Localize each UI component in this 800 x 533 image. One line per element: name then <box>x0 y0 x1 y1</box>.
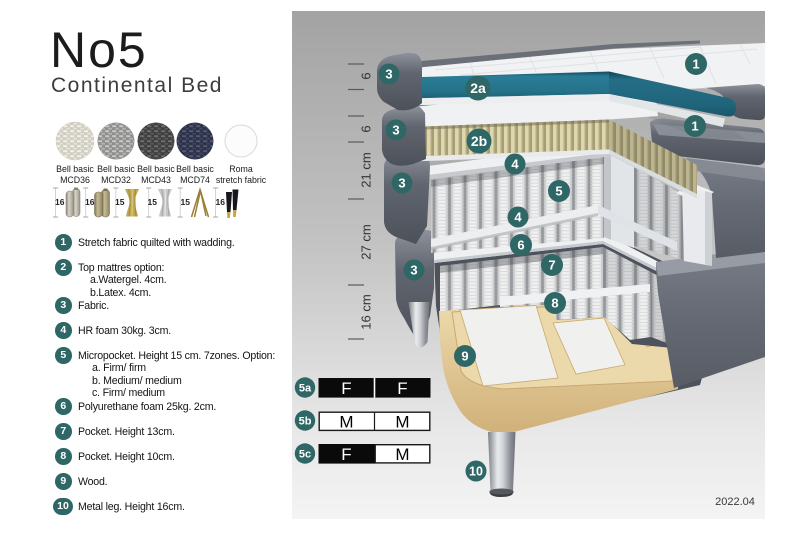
svg-text:M: M <box>339 413 353 432</box>
svg-text:1: 1 <box>691 119 698 134</box>
svg-text:6: 6 <box>517 238 524 253</box>
svg-text:5: 5 <box>555 184 562 199</box>
svg-text:5c: 5c <box>299 449 311 461</box>
svg-text:5a: 5a <box>299 383 312 395</box>
svg-text:6: 6 <box>358 72 373 79</box>
svg-text:2a: 2a <box>470 80 486 96</box>
svg-text:M: M <box>395 413 409 432</box>
svg-text:1: 1 <box>692 57 699 72</box>
svg-text:16 cm: 16 cm <box>358 294 373 329</box>
svg-text:2022.04: 2022.04 <box>715 496 755 508</box>
svg-text:F: F <box>397 379 407 398</box>
svg-text:3: 3 <box>385 67 392 82</box>
svg-text:8: 8 <box>551 296 558 311</box>
svg-text:3: 3 <box>410 263 417 278</box>
svg-text:F: F <box>341 379 351 398</box>
svg-text:10: 10 <box>469 465 483 479</box>
svg-text:21 cm: 21 cm <box>358 152 373 187</box>
svg-text:M: M <box>395 445 409 464</box>
svg-text:F: F <box>341 445 351 464</box>
svg-text:4: 4 <box>511 157 519 172</box>
svg-text:9: 9 <box>461 349 468 364</box>
svg-text:6: 6 <box>358 125 373 132</box>
svg-text:3: 3 <box>398 176 405 191</box>
svg-text:3: 3 <box>392 123 399 138</box>
svg-text:7: 7 <box>548 258 555 273</box>
svg-text:4: 4 <box>514 210 522 225</box>
svg-text:27 cm: 27 cm <box>358 224 373 259</box>
svg-text:2b: 2b <box>471 133 487 149</box>
svg-text:5b: 5b <box>299 416 312 428</box>
